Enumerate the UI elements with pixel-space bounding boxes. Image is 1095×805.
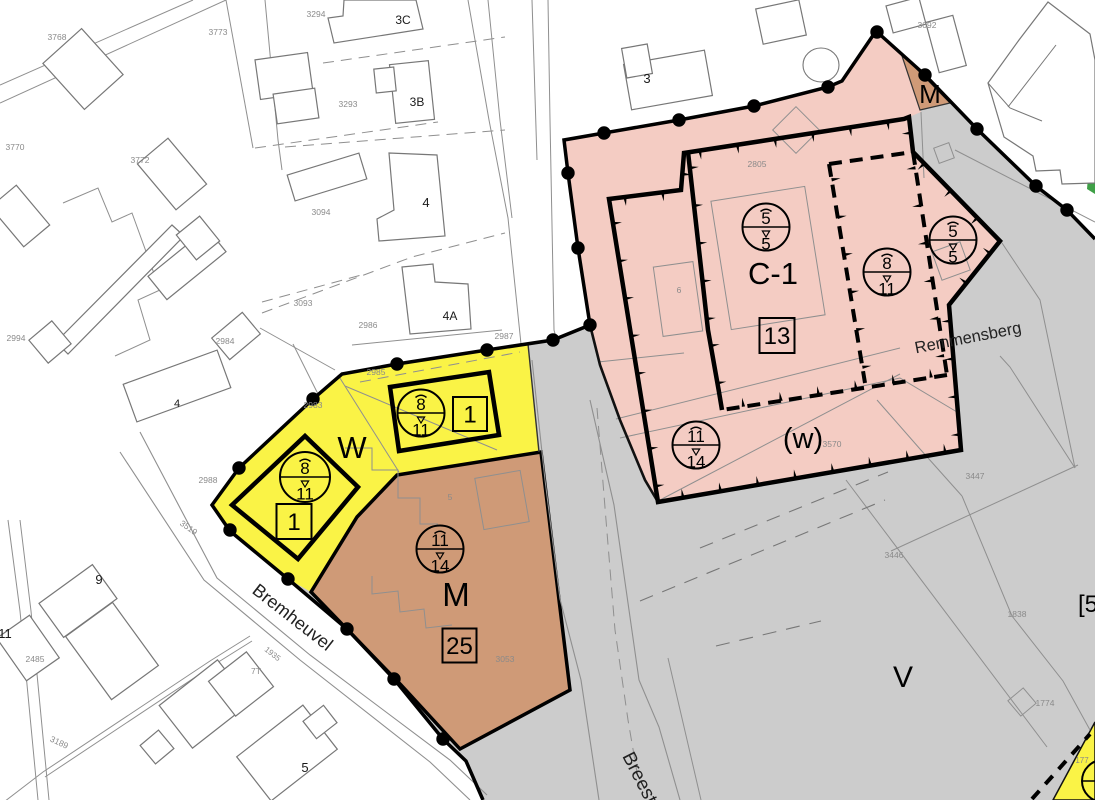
svg-text:3446: 3446	[885, 550, 904, 560]
svg-text:5: 5	[948, 248, 957, 267]
svg-text:4: 4	[422, 195, 429, 210]
svg-text:8: 8	[882, 254, 891, 273]
svg-text:11: 11	[878, 280, 896, 299]
svg-text:3092: 3092	[918, 20, 937, 30]
svg-text:2983: 2983	[304, 400, 323, 410]
svg-text:4: 4	[174, 398, 180, 410]
svg-text:2994: 2994	[7, 333, 26, 343]
svg-text:5: 5	[948, 222, 957, 241]
svg-text:2985: 2985	[367, 367, 386, 377]
svg-text:5: 5	[761, 209, 770, 228]
svg-text:11: 11	[296, 485, 314, 504]
svg-text:2805: 2805	[748, 159, 767, 169]
svg-text:2987: 2987	[495, 331, 514, 341]
svg-text:2485: 2485	[26, 654, 45, 664]
svg-text:1: 1	[463, 402, 476, 429]
svg-text:3773: 3773	[209, 27, 228, 37]
svg-text:3C: 3C	[395, 13, 411, 27]
svg-text:3093: 3093	[294, 298, 313, 308]
svg-text:9: 9	[95, 572, 102, 587]
svg-text:5: 5	[761, 235, 770, 254]
svg-text:177: 177	[1075, 756, 1089, 765]
svg-text:3570: 3570	[823, 439, 842, 449]
svg-text:8: 8	[300, 459, 309, 478]
svg-text:7T: 7T	[251, 666, 261, 676]
svg-text:M: M	[442, 576, 470, 613]
svg-text:2984: 2984	[216, 336, 235, 346]
svg-text:3772: 3772	[131, 155, 150, 165]
svg-text:11: 11	[412, 421, 430, 440]
svg-text:14: 14	[687, 453, 706, 472]
svg-text:3B: 3B	[410, 95, 425, 109]
svg-text:3094: 3094	[312, 207, 331, 217]
svg-text:3: 3	[643, 71, 650, 86]
svg-text:5: 5	[448, 492, 453, 502]
svg-text:4A: 4A	[443, 309, 458, 323]
svg-text:W: W	[337, 430, 367, 465]
svg-text:M: M	[919, 79, 941, 109]
svg-text:V: V	[893, 661, 913, 694]
svg-text:14: 14	[431, 557, 450, 576]
svg-text:3447: 3447	[966, 471, 985, 481]
svg-text:5: 5	[301, 760, 308, 775]
svg-text:25: 25	[446, 633, 473, 660]
svg-text:(w): (w)	[783, 423, 823, 455]
svg-text:3294: 3294	[307, 9, 326, 19]
svg-text:3053: 3053	[496, 654, 515, 664]
svg-text:11: 11	[0, 626, 12, 641]
svg-text:11: 11	[687, 427, 705, 446]
svg-text:1: 1	[287, 509, 300, 536]
svg-text:11: 11	[431, 531, 449, 550]
svg-text:8: 8	[416, 395, 425, 414]
svg-text:2988: 2988	[199, 475, 218, 485]
svg-text:13: 13	[764, 323, 791, 350]
svg-text:C-1: C-1	[748, 256, 798, 291]
svg-text:1838: 1838	[1008, 609, 1027, 619]
svg-text:6: 6	[677, 285, 682, 295]
svg-text:[5: [5	[1078, 591, 1095, 618]
svg-text:3293: 3293	[339, 99, 358, 109]
svg-text:1774: 1774	[1036, 698, 1055, 708]
svg-text:3768: 3768	[48, 32, 67, 42]
svg-text:3770: 3770	[6, 142, 25, 152]
svg-text:2986: 2986	[359, 320, 378, 330]
